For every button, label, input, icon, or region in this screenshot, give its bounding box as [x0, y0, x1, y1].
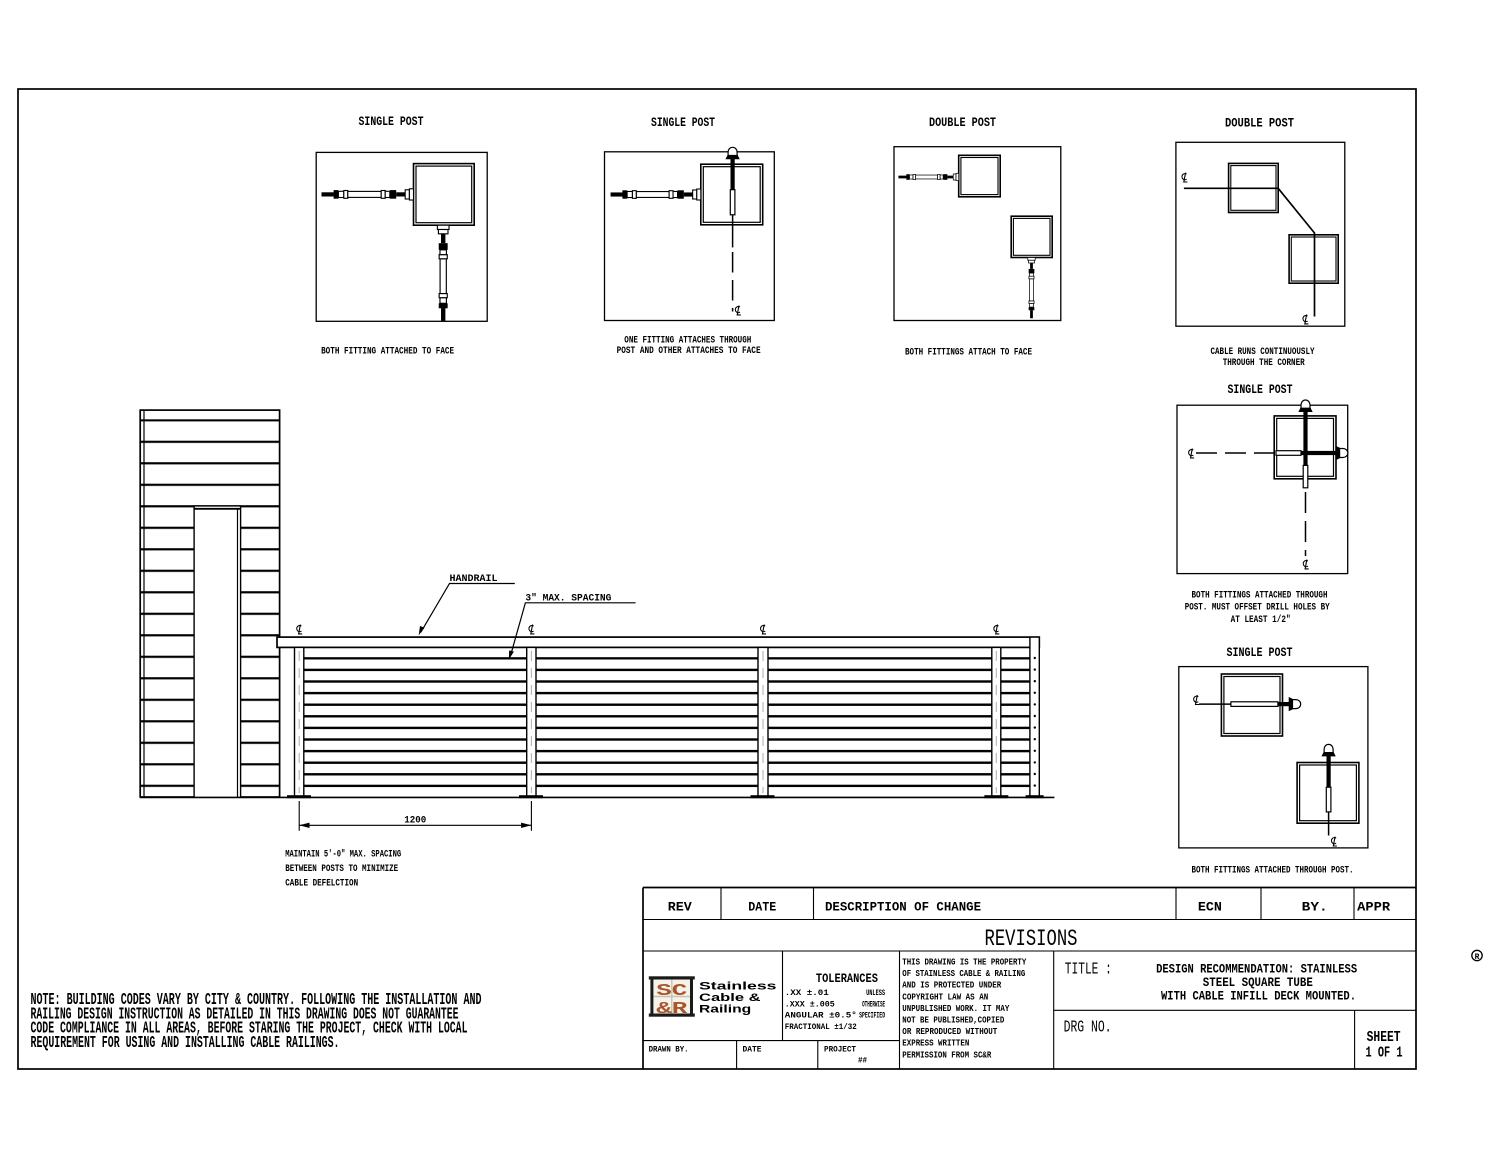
svg-text:1 OF 1: 1 OF 1 [1366, 1046, 1403, 1062]
svg-text:.XX ±.01: .XX ±.01 [785, 988, 829, 998]
svg-text:SC: SC [656, 982, 687, 1001]
svg-text:DESCRIPTION OF CHANGE: DESCRIPTION OF CHANGE [825, 900, 981, 915]
svg-text:&R: &R [656, 1000, 688, 1019]
svg-text:REV: REV [668, 900, 692, 915]
svg-text:BOTH FITTING ATTACHED TO FACE: BOTH FITTING ATTACHED TO FACE [321, 346, 454, 358]
svg-text:SPECIFIED: SPECIFIED [859, 1011, 885, 1021]
svg-text:TITLE :: TITLE : [1065, 961, 1112, 980]
svg-text:POST. MUST OFFSET DRILL HOLES: POST. MUST OFFSET DRILL HOLES BY [1185, 602, 1330, 614]
svg-text:NOT BE PUBLISHED,COPIED: NOT BE PUBLISHED,COPIED [902, 1016, 1004, 1026]
svg-text:AND IS PROTECTED UNDER: AND IS PROTECTED UNDER [902, 981, 1001, 991]
svg-text:FRACTIONAL ±1/32: FRACTIONAL ±1/32 [785, 1022, 857, 1032]
svg-text:TOLERANCES: TOLERANCES [816, 971, 878, 986]
svg-text:OR REPRODUCED WITHOUT: OR REPRODUCED WITHOUT [902, 1027, 997, 1037]
svg-text:OTHERWISE: OTHERWISE [862, 999, 885, 1009]
svg-text:DOUBLE POST: DOUBLE POST [929, 116, 996, 130]
svg-text:SINGLE POST: SINGLE POST [359, 115, 424, 129]
svg-text:BOTH FITTINGS ATTACH TO FACE: BOTH FITTINGS ATTACH TO FACE [905, 347, 1032, 359]
svg-text:ANGULAR ±0.5°: ANGULAR ±0.5° [785, 1011, 857, 1021]
svg-text:THROUGH THE CORNER: THROUGH THE CORNER [1223, 357, 1306, 369]
svg-text:SHEET: SHEET [1367, 1030, 1401, 1046]
svg-text:DOUBLE POST: DOUBLE POST [1225, 117, 1294, 131]
svg-text:REQUIREMENT FOR USING AND INST: REQUIREMENT FOR USING AND INSTALLING CAB… [31, 1033, 340, 1052]
svg-text:PROJECT: PROJECT [824, 1045, 856, 1055]
svg-text:AT LEAST 1/2": AT LEAST 1/2" [1231, 614, 1291, 626]
svg-text:THIS DRAWING IS THE PROPERTY: THIS DRAWING IS THE PROPERTY [902, 958, 1026, 968]
svg-text:DRAWN BY.: DRAWN BY. [649, 1045, 689, 1055]
svg-text:Cable &: Cable & [699, 992, 761, 1004]
svg-text:MAINTAIN 5'-0" MAX. SPACING: MAINTAIN 5'-0" MAX. SPACING [285, 849, 401, 861]
svg-text:.XXX ±.005: .XXX ±.005 [785, 999, 835, 1009]
svg-text:APPR: APPR [1357, 900, 1390, 915]
svg-text:CABLE DEFELCTION: CABLE DEFELCTION [285, 878, 358, 890]
svg-text:Stainless: Stainless [699, 981, 777, 993]
svg-text:UNLESS: UNLESS [866, 988, 885, 998]
svg-text:REVISIONS: REVISIONS [985, 926, 1078, 952]
svg-text:WITH CABLE INFILL DECK MOUNTED: WITH CABLE INFILL DECK MOUNTED. [1161, 989, 1356, 1004]
svg-text:BOTH FITTINGS ATTACHED THROUGH: BOTH FITTINGS ATTACHED THROUGH [1192, 590, 1328, 602]
svg-text:DRG NO.: DRG NO. [1064, 1019, 1112, 1038]
svg-text:DATE: DATE [748, 900, 776, 915]
svg-text:SINGLE POST: SINGLE POST [1228, 383, 1293, 397]
svg-text:1200: 1200 [404, 815, 426, 826]
svg-text:EXPRESS WRITTEN: EXPRESS WRITTEN [902, 1039, 969, 1049]
svg-text:SINGLE POST: SINGLE POST [651, 116, 715, 130]
svg-text:DATE: DATE [743, 1045, 762, 1055]
svg-text:R: R [1475, 953, 1480, 962]
svg-text:BY.: BY. [1302, 900, 1328, 915]
svg-text:COPYRIGHT LAW AS AN: COPYRIGHT LAW AS AN [902, 992, 988, 1002]
svg-text:Railing: Railing [699, 1004, 751, 1016]
svg-text:PERMISSION FROM SC&R: PERMISSION FROM SC&R [902, 1050, 991, 1060]
svg-text:BETWEEN POSTS TO MINIMIZE: BETWEEN POSTS TO MINIMIZE [285, 863, 398, 875]
svg-text:BOTH FITTINGS ATTACHED THROUGH: BOTH FITTINGS ATTACHED THROUGH POST. [1192, 865, 1354, 877]
svg-text:SINGLE POST: SINGLE POST [1227, 646, 1293, 660]
svg-text:POST AND OTHER ATTACHES TO FAC: POST AND OTHER ATTACHES TO FACE [617, 345, 761, 357]
svg-text:##: ## [858, 1056, 867, 1066]
svg-text:UNPUBLISHED WORK. IT MAY: UNPUBLISHED WORK. IT MAY [902, 1004, 1009, 1014]
svg-text:ECN: ECN [1198, 900, 1222, 915]
svg-text:OF STAINLESS CABLE & RAILING: OF STAINLESS CABLE & RAILING [902, 969, 1025, 979]
